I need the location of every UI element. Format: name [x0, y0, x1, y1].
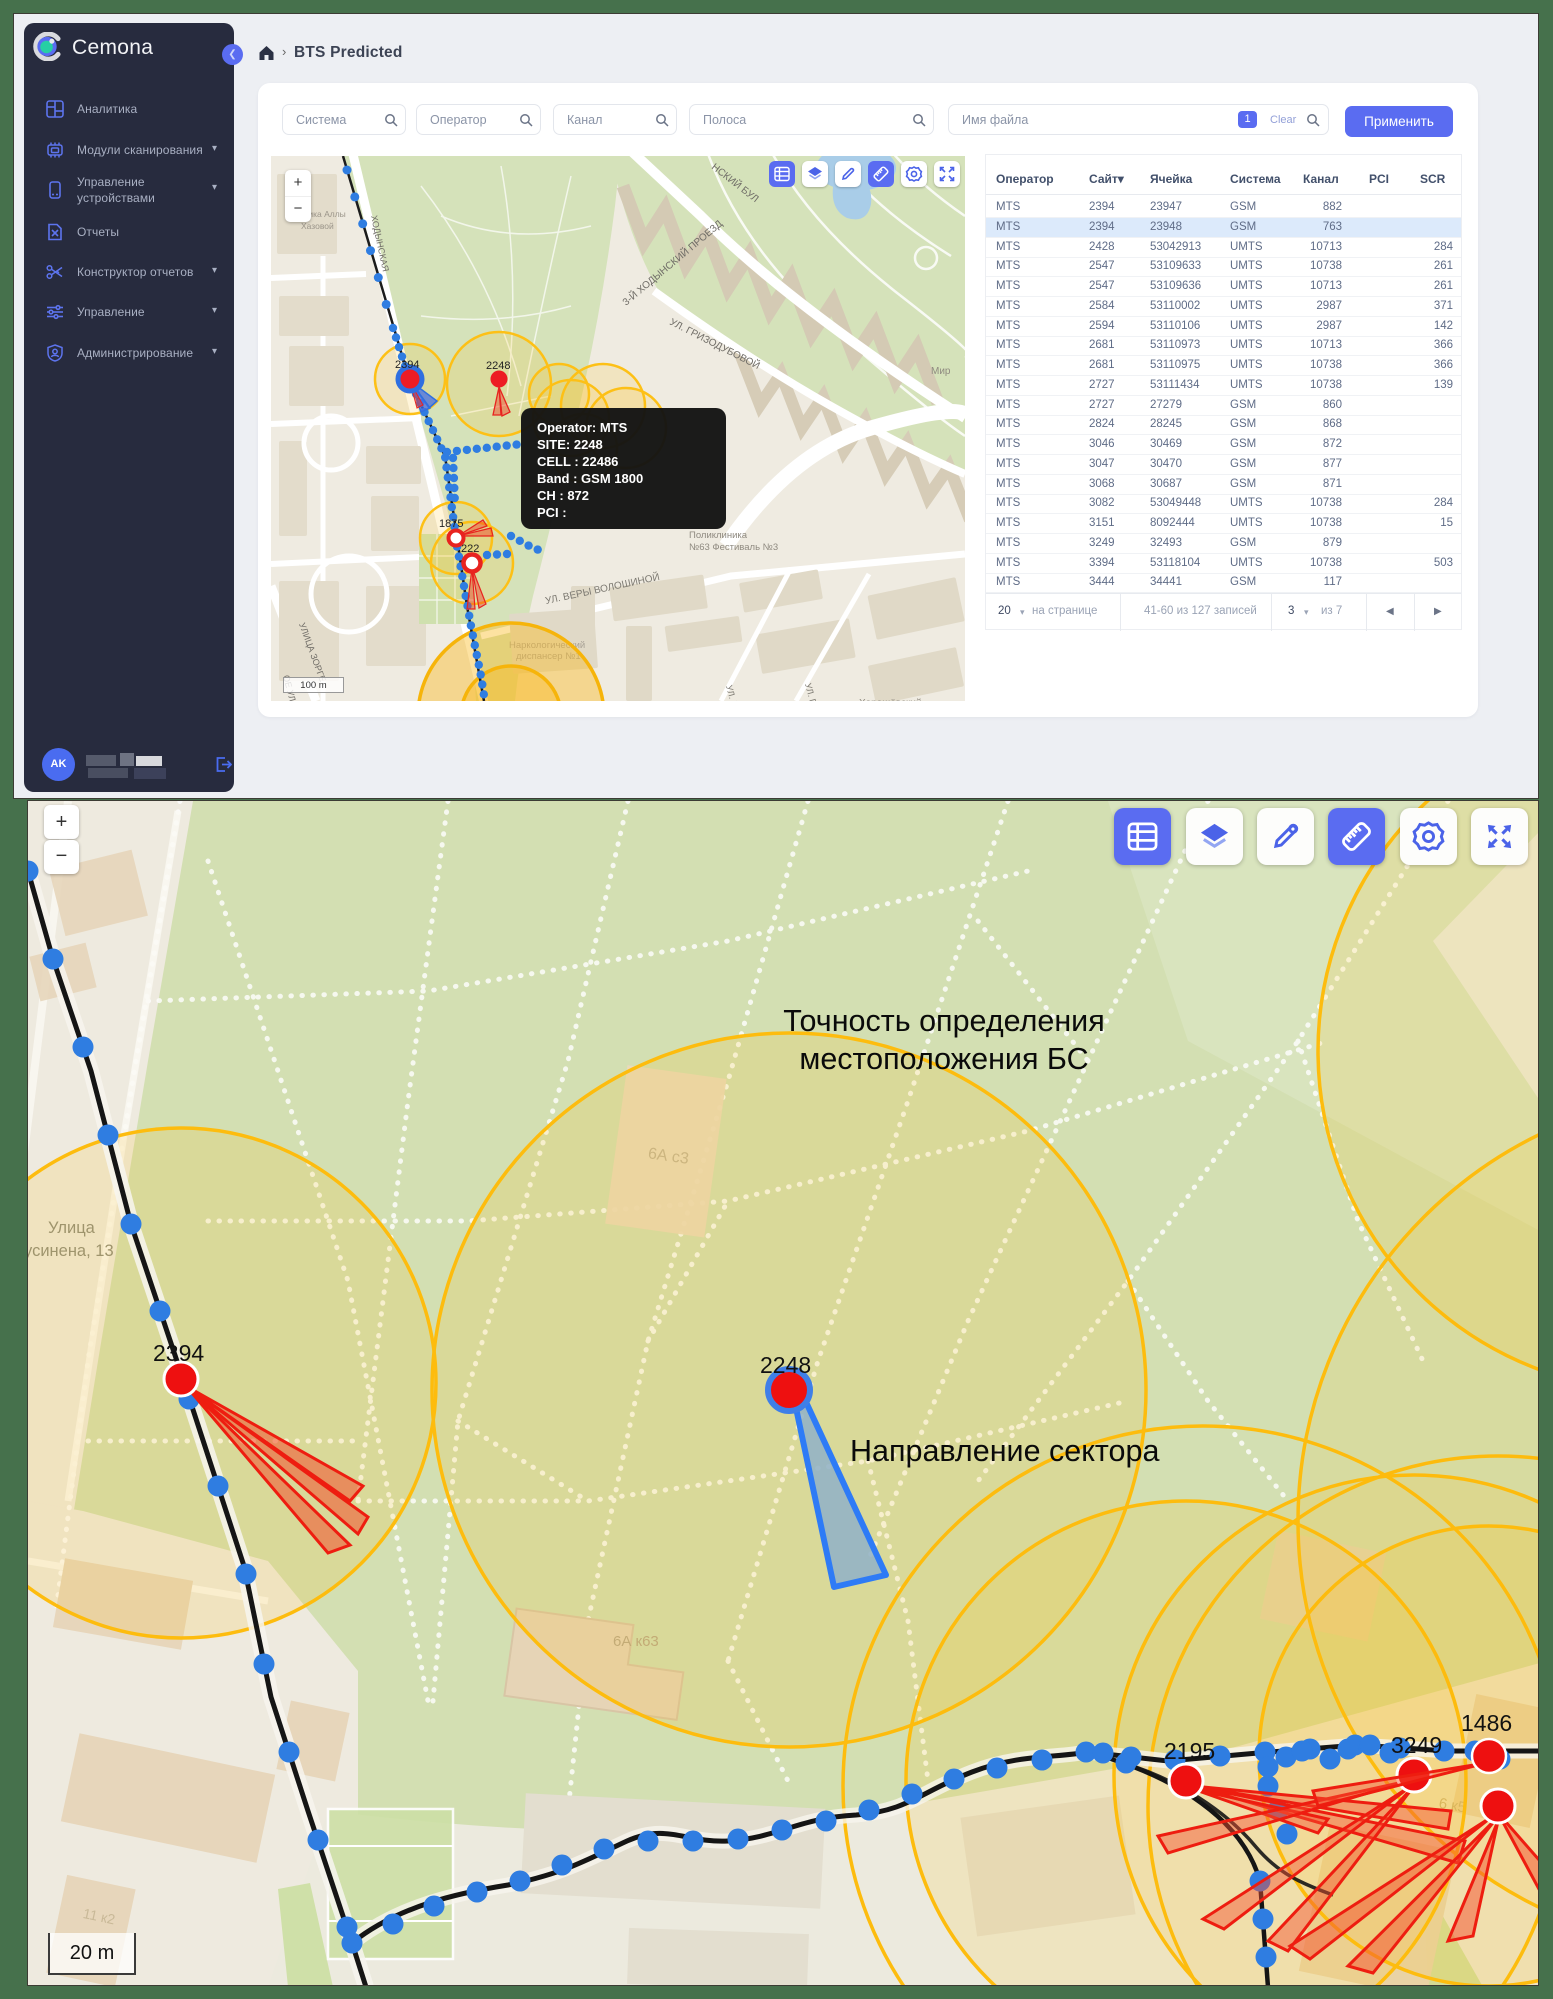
- svg-text:PCI :: PCI :: [537, 505, 567, 520]
- svg-text:2394: 2394: [153, 1340, 204, 1366]
- svg-text:Band : GSM 1800: Band : GSM 1800: [537, 471, 643, 486]
- svg-text:2394: 2394: [395, 359, 419, 371]
- svg-text:Operator: MTS: Operator: MTS: [537, 420, 628, 435]
- svg-text:1875: 1875: [439, 518, 463, 530]
- svg-text:Хазовой: Хазовой: [301, 221, 334, 231]
- svg-text:2248: 2248: [486, 360, 510, 372]
- svg-text:2195: 2195: [1164, 1738, 1215, 1764]
- svg-text:Мир: Мир: [931, 366, 951, 377]
- svg-text:Направление сектора: Направление сектора: [850, 1434, 1159, 1468]
- svg-text:3249: 3249: [1391, 1732, 1442, 1758]
- svg-text:Точность определения: Точность определения: [783, 1004, 1104, 1038]
- svg-text:CH : 872: CH : 872: [537, 488, 589, 503]
- svg-text:2248: 2248: [760, 1352, 811, 1378]
- svg-text:местоположения БС: местоположения БС: [799, 1042, 1088, 1076]
- svg-text:Хорошёвский: Хорошёвский: [859, 698, 922, 701]
- svg-text:222: 222: [461, 543, 479, 555]
- svg-text:SITE: 2248: SITE: 2248: [537, 437, 603, 452]
- svg-text:1486: 1486: [1461, 1710, 1512, 1736]
- svg-text:Поликлиника: Поликлиника: [689, 530, 748, 541]
- svg-text:CELL : 22486: CELL : 22486: [537, 454, 618, 469]
- svg-text:№63 Фестиваль №3: №63 Фестиваль №3: [689, 542, 778, 553]
